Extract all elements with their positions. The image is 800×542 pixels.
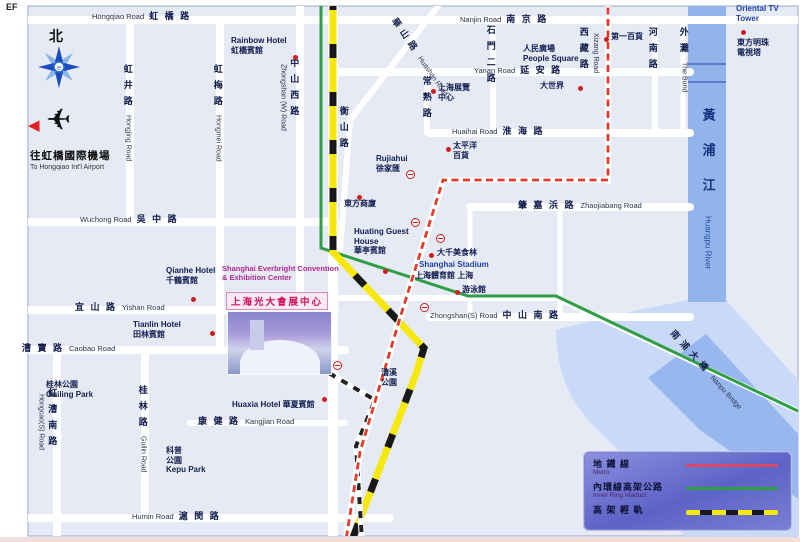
poi-dot (455, 290, 460, 295)
poi-tianlin-hotel: Tianlin Hotel田林賓館 (133, 320, 181, 339)
legend-row-metro: 地 鐵 線Metro (593, 457, 782, 479)
road-hongqiao: Hongqiao Road虹 橋 路 (92, 11, 191, 22)
road-hongmei: 虹梅路Hongmei Road (212, 64, 223, 162)
legend-row-rail: 高 架 輕 軌 (593, 503, 782, 525)
compass-rose-icon: e (38, 46, 80, 88)
road-shimener: 石門二路 (485, 25, 496, 89)
road-hongjing: 虹井路Hongjing Road (122, 64, 133, 161)
convention-center-photo (227, 311, 332, 375)
road-zhongshan-w: 中山西路Zhongshan (W) Road (278, 58, 299, 131)
road-hengshan: 衡山路 (338, 106, 349, 154)
poi-dot (322, 397, 327, 402)
road-henan: 河南路 (647, 27, 658, 75)
road-humin: Humin Road滬 閔 路 (132, 511, 221, 522)
poi-dot (383, 269, 388, 274)
legend-row-ring: 內環線高架公路Inner Ring Viaduct (593, 480, 782, 502)
legend-label-en: Metro (593, 469, 782, 476)
road-wuzhong: Wuchong Road吳 中 路 (80, 214, 179, 225)
airplane-icon: ✈ (46, 100, 71, 135)
poi-dot (357, 195, 362, 200)
poi-dot (191, 297, 196, 302)
poi-no1-department-store: 第一百貨 (611, 32, 643, 42)
poi-great-world: 大世界 (540, 81, 564, 91)
poi-shanghai-stadium-en: Shanghai Stadium (419, 260, 489, 270)
airport-label-cn: 往虹橋國際機場 (30, 148, 111, 163)
poi-pacific-department-store: 太平洋百貨 (453, 141, 477, 160)
poi-oriental-shopping-centre: 東方商廈 (344, 199, 376, 209)
road-guilin: 桂林路Guilin Road (137, 385, 148, 473)
road-xizang: 西藏路Xizang Road (578, 27, 599, 75)
poi-shanghai-stadium: 上海體育館 上海 (415, 271, 473, 281)
poi-huating-guest-house: Huating GuestHouse華亭賓館 (354, 227, 409, 256)
poi-dot (604, 37, 609, 42)
the-bund: 外灘The Bund (678, 27, 689, 92)
road-kangjian: 康 健 路Kangjian Road (198, 416, 294, 427)
road-zhaojiabang: 肇 嘉 浜 路Zhaojiabang Road (518, 200, 642, 211)
poi-dot (446, 147, 451, 152)
poi-dot (578, 86, 583, 91)
poi-oriental-tv-tower: 東方明珠電視塔 (737, 38, 769, 57)
poi-dot (293, 55, 298, 60)
poi-daqian-gourmet: 大千美食林 (437, 248, 477, 258)
legend-line-sample-metro (686, 464, 778, 467)
metro-station-icon (420, 303, 429, 312)
poi-dot (429, 253, 434, 258)
svg-text:e: e (57, 65, 61, 72)
corner-text: EF (6, 2, 18, 12)
poi-people-square: 人民廣場People Square (523, 44, 579, 63)
legend-label-en: Inner Ring Viaduct (593, 492, 782, 499)
area-caoxi-park: 漕溪公園 (381, 368, 397, 387)
north-label: 北 (49, 26, 63, 46)
metro-station-icon (333, 361, 342, 370)
road-yishan: 宜 山 路Yishan Road (75, 302, 165, 313)
huangpu-river-label: 黃浦江Huangpu River (700, 108, 716, 269)
road-caobao: 漕 寶 路Caobao Road (22, 343, 115, 354)
poi-dot (431, 89, 436, 94)
metro-station-icon (436, 234, 445, 243)
poi-huaxia-hotel: Huaxia Hotel 華夏賓館 (232, 400, 315, 410)
poi-dot (210, 331, 215, 336)
legend-line-sample-rail (686, 510, 778, 515)
metro-station-icon (411, 218, 420, 227)
airport-label-en: To Hongqiao Int'l Airport (30, 164, 104, 171)
poi-xujiahui: Rujiahui徐家匯 (376, 154, 408, 173)
poi-dot (741, 30, 746, 35)
legend-line-sample-ring (686, 487, 778, 490)
area-guilin-park: 桂林公園Guiling Park (46, 380, 93, 399)
poi-swimming-center: 游泳館 (462, 285, 486, 295)
poi-qianhe-hotel: Qianhe Hotel千鶴賓館 (166, 266, 215, 285)
poi-oriental-tv-tower-en: Oriental TVTower (736, 4, 779, 23)
metro-station-icon (406, 170, 415, 179)
convention-center-name-en: Shanghai Everbright Convention & Exhibit… (222, 264, 339, 283)
road-nanjing: Nanjin Road南 京 路 (460, 14, 548, 25)
convention-center-banner: 上海光大會展中心 (226, 292, 328, 310)
airport-direction-arrow-icon: ◀ (28, 116, 40, 134)
poi-shanghai-exhibition-center: 上海展覽中心 (438, 83, 470, 102)
road-zhongshan-s: Zhongshan(S) Road中 山 南 路 (430, 310, 560, 321)
road-huaihai: Huaihai Road淮 海 路 (452, 126, 544, 137)
poi-rainbow-hotel: Rainbow Hotel虹橋賓館 (231, 36, 287, 55)
area-kepu-park: 科普公園Kepu Park (166, 446, 206, 475)
map-legend: 地 鐵 線Metro內環線高架公路Inner Ring Viaduct高 架 輕… (583, 451, 792, 531)
map-page: EF 北 e ◀ ✈ 往虹橋國際機場 To Hongqiao Int'l Air… (0, 0, 800, 542)
